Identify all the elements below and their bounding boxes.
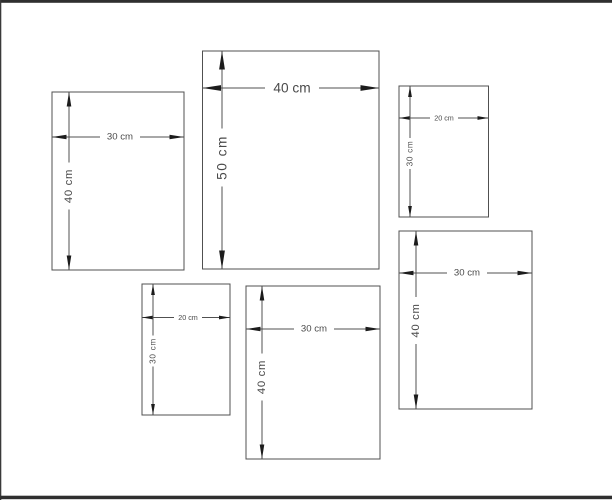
svg-text:40 cm: 40 cm [273,81,310,96]
svg-text:30 cm: 30 cm [406,141,415,167]
svg-text:30 cm: 30 cm [107,132,133,143]
svg-text:20 cm: 20 cm [178,313,198,322]
svg-text:30 cm: 30 cm [454,268,480,279]
svg-text:40 cm: 40 cm [63,169,75,203]
svg-text:40 cm: 40 cm [256,360,268,394]
svg-text:30 cm: 30 cm [301,324,327,335]
svg-text:40 cm: 40 cm [410,303,422,337]
svg-text:50 cm: 50 cm [215,135,230,180]
svg-text:20 cm: 20 cm [434,114,454,123]
svg-text:30 cm: 30 cm [149,338,158,364]
